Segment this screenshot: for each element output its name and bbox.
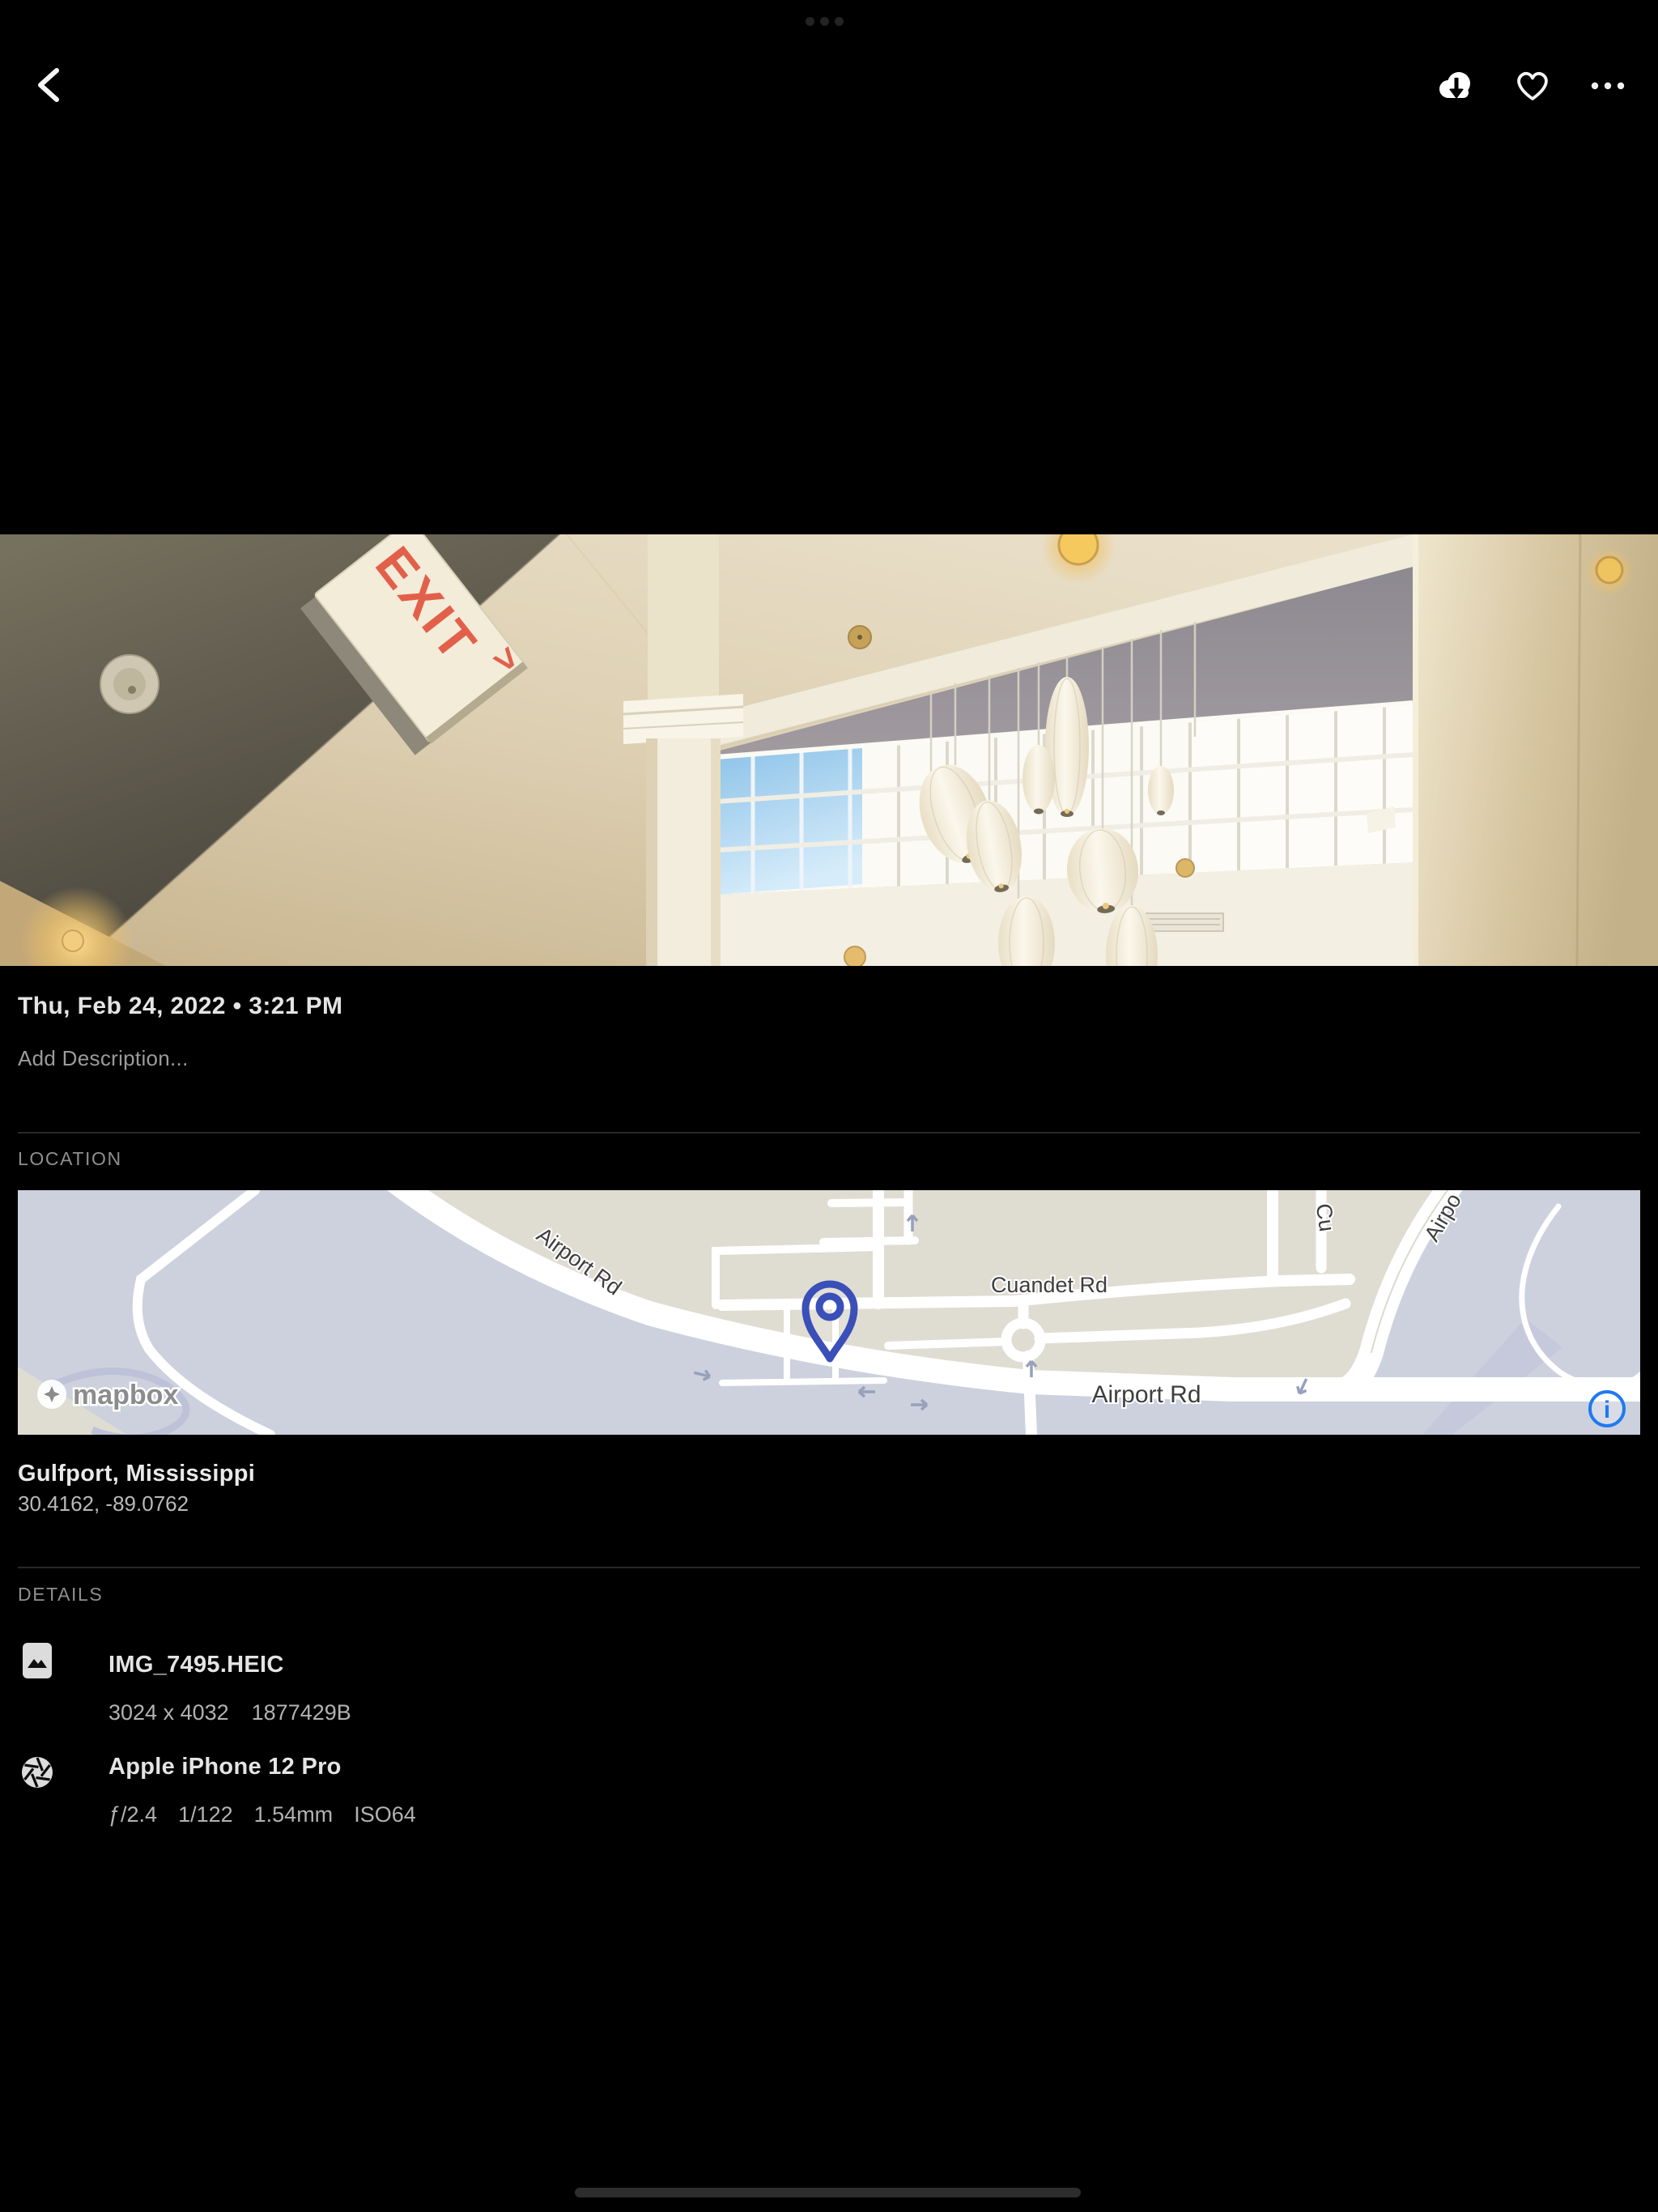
favorite-button[interactable] bbox=[1514, 67, 1551, 105]
map-info-button[interactable]: i bbox=[1590, 1392, 1624, 1426]
divider bbox=[18, 1132, 1640, 1134]
cloud-download-icon bbox=[1435, 96, 1476, 108]
file-meta: 3024 x 4032 1877429B bbox=[108, 1700, 351, 1725]
multitask-dot bbox=[835, 17, 844, 26]
photo-right-pillar bbox=[1413, 534, 1658, 966]
heart-icon bbox=[1514, 93, 1551, 105]
photo-date: Thu, Feb 24, 2022 • 3:21 PM bbox=[18, 993, 342, 1020]
camera-aperture: ƒ/2.4 bbox=[108, 1802, 157, 1827]
mapbox-attribution[interactable]: mapbox bbox=[37, 1380, 178, 1410]
add-description-field[interactable]: Add Description... bbox=[18, 1046, 189, 1071]
divider bbox=[18, 1567, 1640, 1568]
location-coordinates: 30.4162, -89.0762 bbox=[18, 1491, 189, 1516]
file-name: IMG_7495.HEIC bbox=[108, 1652, 284, 1678]
map-label-cuandet-rd: Cuandet Rd bbox=[991, 1273, 1107, 1297]
multitask-dot bbox=[820, 17, 829, 26]
mapbox-logo-text: mapbox bbox=[73, 1380, 178, 1410]
map-label-cross-street: Cu bbox=[1312, 1202, 1340, 1233]
camera-iso: ISO64 bbox=[354, 1802, 416, 1827]
info-icon: i bbox=[1604, 1397, 1610, 1423]
ellipsis-icon bbox=[1588, 82, 1630, 94]
camera-meta: ƒ/2.4 1/122 1.54mm ISO64 bbox=[108, 1802, 416, 1827]
camera-icon bbox=[20, 1755, 54, 1793]
multitask-dot bbox=[806, 17, 814, 26]
camera-name: Apple iPhone 12 Pro bbox=[108, 1754, 342, 1780]
camera-shutter: 1/122 bbox=[178, 1802, 233, 1827]
multitask-indicator[interactable] bbox=[806, 17, 844, 26]
file-size: 1877429B bbox=[252, 1700, 351, 1725]
chevron-left-icon bbox=[32, 94, 66, 106]
details-heading: DETAILS bbox=[18, 1584, 103, 1606]
file-dimensions: 3024 x 4032 bbox=[108, 1700, 229, 1725]
home-indicator[interactable] bbox=[575, 2188, 1081, 2197]
more-button[interactable] bbox=[1588, 80, 1630, 94]
location-place: Gulfport, Mississippi bbox=[18, 1461, 255, 1487]
camera-focal-length: 1.54mm bbox=[254, 1802, 334, 1827]
back-button[interactable] bbox=[32, 66, 66, 106]
download-button[interactable] bbox=[1435, 66, 1476, 108]
file-type-icon bbox=[22, 1642, 53, 1683]
photo-viewer[interactable]: EXIT > bbox=[0, 534, 1658, 966]
location-heading: LOCATION bbox=[18, 1148, 122, 1170]
location-map[interactable]: Airport Rd Cuandet Rd Airport Rd Airpo C… bbox=[18, 1190, 1640, 1435]
map-label-airport-rd-lower: Airport Rd bbox=[1091, 1381, 1201, 1408]
